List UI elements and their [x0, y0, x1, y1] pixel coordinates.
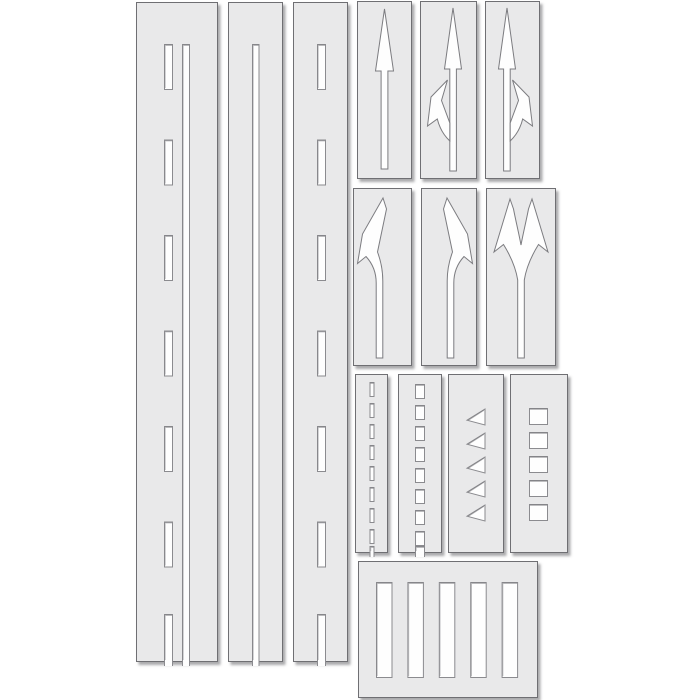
stencil-arrow-turn-left — [353, 188, 412, 366]
cutout-rect — [370, 530, 374, 544]
stencil-arrow-straight-or-right-graphic — [485, 1, 540, 184]
cutout-rect — [370, 467, 374, 481]
cutout-rect — [471, 583, 487, 678]
cutout-rect — [370, 383, 374, 397]
cutout-rect — [370, 509, 374, 523]
cutout-rect — [370, 488, 374, 502]
stencil-squares-graphic — [510, 374, 568, 558]
stencil-yield-triangles — [448, 374, 504, 553]
stencil-yield-triangles-graphic — [448, 374, 504, 558]
cutout-rect — [416, 490, 425, 504]
stencil-strip-solid-line — [228, 2, 283, 662]
stencil-arrow-fork-left-right — [486, 188, 556, 366]
cutout-rect — [416, 427, 425, 441]
cutout-rect — [416, 532, 425, 546]
cutout-rect — [370, 404, 374, 418]
stencil-arrow-turn-right-graphic — [421, 188, 477, 371]
stencil-plate — [486, 2, 540, 179]
cutout-rect — [530, 457, 548, 473]
stencil-strip-dashed-line-graphic — [293, 2, 348, 667]
cutout-rect — [370, 425, 374, 439]
cutout-open-slot — [416, 547, 425, 558]
stencil-short-dashes — [355, 374, 388, 553]
cutout-rect — [416, 406, 425, 420]
cutout-rect — [377, 583, 393, 678]
stencil-plate — [356, 375, 388, 553]
stencil-arrow-turn-right — [421, 188, 477, 366]
stencil-arrow-straight-or-right — [485, 1, 540, 179]
stencil-strip-dashed-plus-solid-line — [136, 2, 218, 662]
cutout-rect — [530, 409, 548, 425]
stencil-short-dashes-graphic — [355, 374, 388, 558]
stencil-arrow-straight — [357, 1, 412, 179]
stencil-sheet-canvas — [0, 0, 700, 700]
stencil-strip-solid-line-graphic — [228, 2, 283, 667]
cutout-rect — [416, 511, 425, 525]
stencil-plate — [137, 3, 218, 662]
stencil-strip-dashed-plus-solid-line-graphic — [136, 2, 218, 667]
stencil-arrow-turn-left-graphic — [353, 188, 412, 371]
cutout-rect — [530, 481, 548, 497]
stencil-crosswalk-bars-graphic — [358, 561, 538, 700]
stencil-plate — [421, 2, 477, 179]
stencil-crosswalk-bars — [358, 561, 538, 698]
cutout-rect — [370, 446, 374, 460]
stencil-small-blocks-graphic — [398, 374, 442, 558]
cutout-rect — [530, 433, 548, 449]
stencil-arrow-straight-or-left-graphic — [420, 1, 477, 184]
cutout-rect — [416, 385, 425, 399]
stencil-small-blocks — [398, 374, 442, 553]
cutout-rect — [408, 583, 424, 678]
cutout-rect — [416, 469, 425, 483]
stencil-arrow-straight-or-left — [420, 1, 477, 179]
cutout-rect — [439, 583, 455, 678]
stencil-squares — [510, 374, 568, 553]
cutout-rect — [530, 505, 548, 521]
cutout-rect — [416, 448, 425, 462]
cutout-rect — [502, 583, 517, 678]
stencil-arrow-fork-left-right-graphic — [486, 188, 556, 371]
stencil-arrow-straight-graphic — [357, 1, 412, 184]
stencil-plate — [399, 375, 442, 553]
stencil-strip-dashed-line — [293, 2, 348, 662]
